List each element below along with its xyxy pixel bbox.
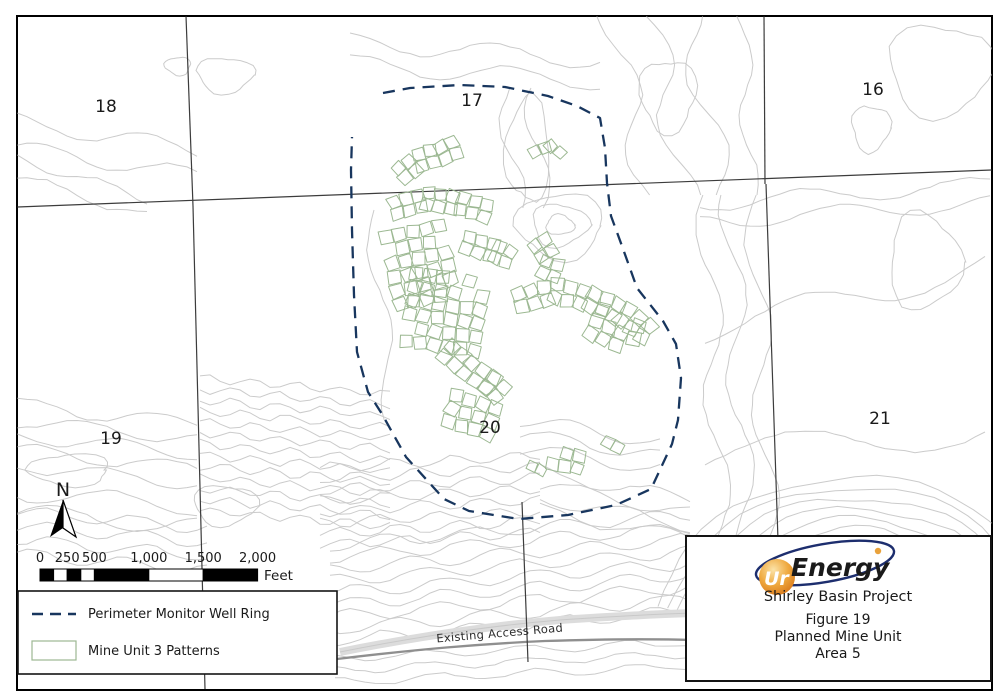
title-block: Ur Energy Shirley Basin Project Figure 1… xyxy=(686,532,991,681)
project-name: Shirley Basin Project xyxy=(764,589,913,605)
map-canvas: Existing Access Road 181716192021 N 0250… xyxy=(0,0,1006,692)
scale-bar-segment xyxy=(54,569,68,581)
scale-bar-segment xyxy=(40,569,54,581)
figure-subject: Planned Mine Unit xyxy=(774,629,902,645)
scale-bar-segment xyxy=(94,569,148,581)
scale-tick-label: 2,000 xyxy=(239,551,276,566)
scale-tick-label: 500 xyxy=(82,551,107,566)
scale-tick-label: 1,500 xyxy=(185,551,222,566)
figure-number: Figure 19 xyxy=(805,612,870,628)
scale-bar-segment xyxy=(203,569,257,581)
legend-pattern-swatch-icon xyxy=(32,641,76,660)
section-number-label: 16 xyxy=(862,80,884,100)
scale-tick-label: 1,000 xyxy=(130,551,167,566)
legend-item-patterns: Mine Unit 3 Patterns xyxy=(32,641,220,660)
logo-ur-text: Ur xyxy=(764,568,790,590)
legend-box: Perimeter Monitor Well Ring Mine Unit 3 … xyxy=(18,591,337,674)
logo-gold-dot-icon xyxy=(875,548,881,554)
north-label: N xyxy=(56,479,70,501)
section-number-label: 21 xyxy=(869,409,891,429)
section-number-label: 17 xyxy=(461,91,483,111)
legend-border xyxy=(18,591,337,674)
section-number-label: 20 xyxy=(479,418,501,438)
scale-bar-segment xyxy=(67,569,81,581)
logo-energy-text: Energy xyxy=(791,553,891,582)
section-number-label: 19 xyxy=(100,429,122,449)
scale-bar-segment xyxy=(149,569,203,581)
scale-tick-label: 0 xyxy=(36,551,44,566)
scale-tick-label: 250 xyxy=(55,551,80,566)
figure-area: Area 5 xyxy=(815,646,861,662)
section-number-label: 18 xyxy=(95,97,117,117)
scale-unit-label: Feet xyxy=(264,568,293,584)
legend-patterns-label: Mine Unit 3 Patterns xyxy=(88,644,220,659)
scale-bar-segment xyxy=(81,569,95,581)
map-figure: Existing Access Road 181716192021 N 0250… xyxy=(0,0,1006,692)
legend-ring-label: Perimeter Monitor Well Ring xyxy=(88,607,270,622)
